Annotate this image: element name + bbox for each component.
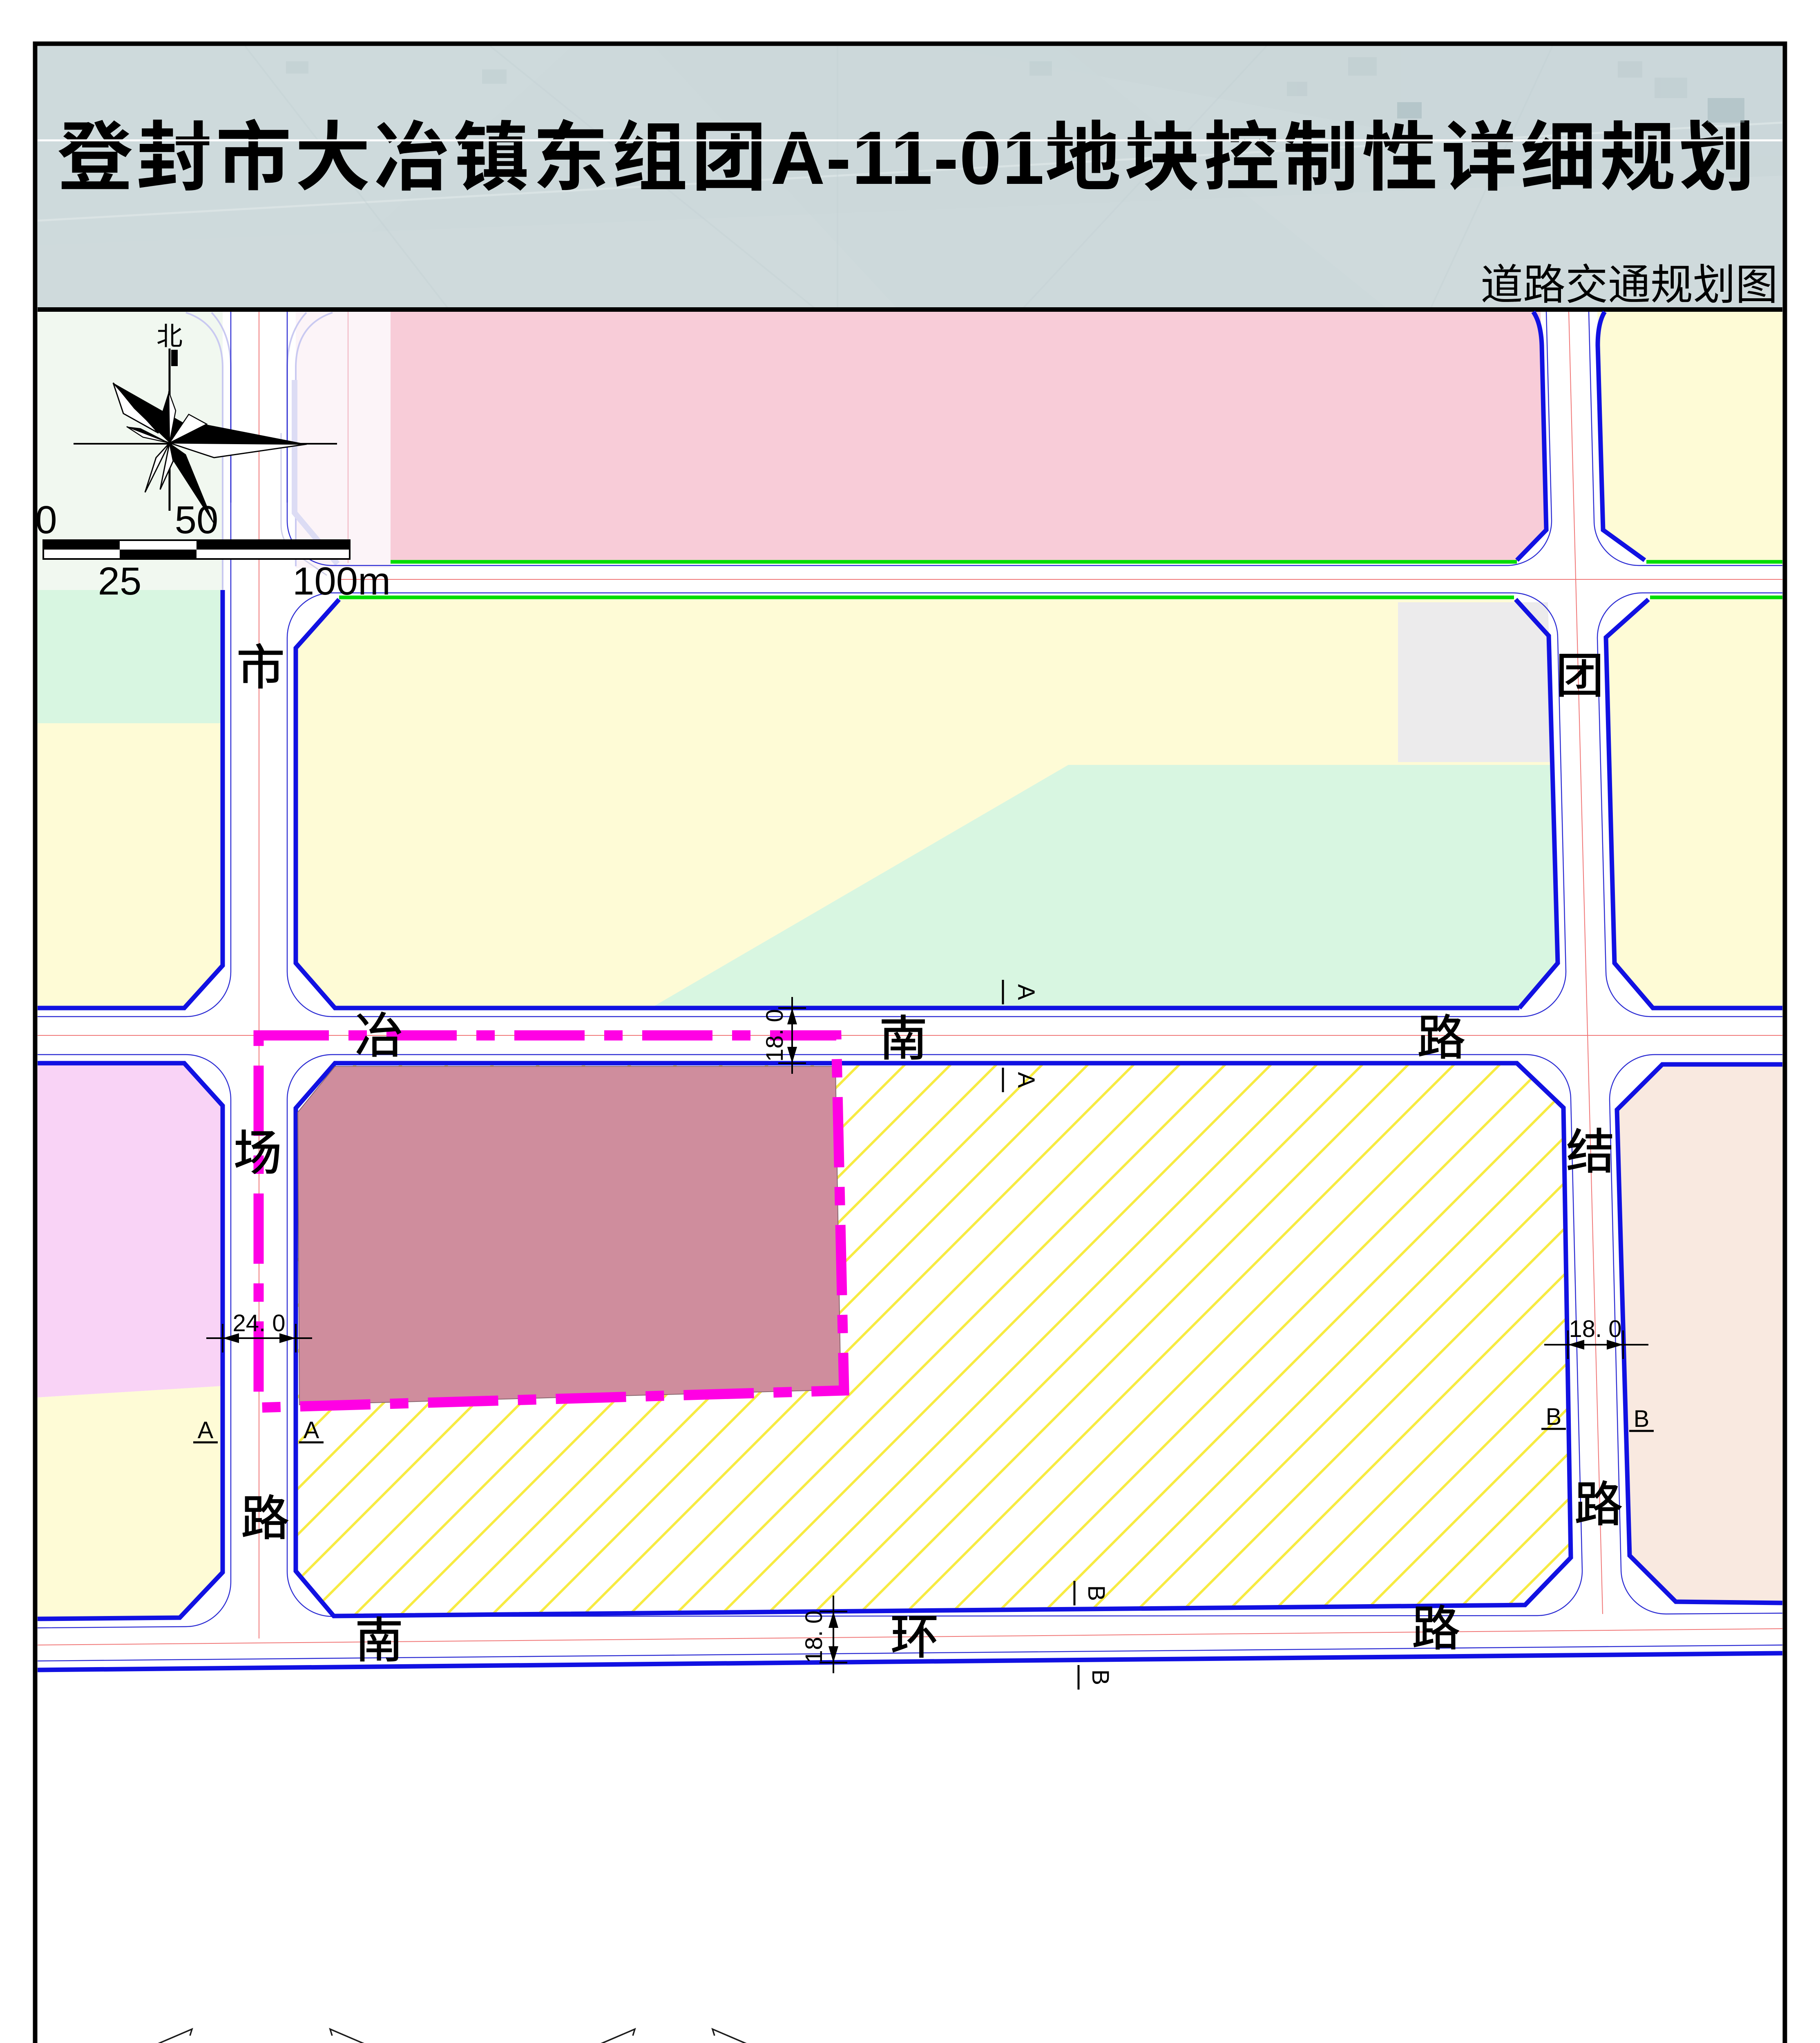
svg-text:南: 南 <box>879 999 927 1069</box>
svg-text:路: 路 <box>1412 1589 1460 1659</box>
svg-text:B: B <box>1546 1404 1562 1430</box>
svg-text:100m: 100m <box>293 559 391 603</box>
svg-text:路: 路 <box>241 1479 289 1549</box>
svg-text:冶: 冶 <box>355 997 403 1066</box>
svg-text:南: 南 <box>355 1601 403 1671</box>
svg-text:市: 市 <box>237 628 285 698</box>
svg-text:A: A <box>1013 1072 1039 1088</box>
svg-text:24. 0: 24. 0 <box>233 1310 286 1337</box>
svg-text:18. 0: 18. 0 <box>801 1611 827 1663</box>
svg-text:18. 0: 18. 0 <box>761 1009 788 1062</box>
svg-text:环: 环 <box>891 1598 939 1667</box>
svg-text:团: 团 <box>1556 637 1604 706</box>
svg-text:B: B <box>1634 1406 1650 1432</box>
svg-text:A: A <box>304 1417 319 1444</box>
svg-text:25: 25 <box>98 559 142 603</box>
svg-text:结: 结 <box>1566 1113 1615 1182</box>
svg-text:北: 北 <box>156 315 183 353</box>
svg-text:18. 0: 18. 0 <box>1569 1316 1622 1342</box>
svg-text:路: 路 <box>1417 999 1465 1068</box>
svg-text:B: B <box>1083 1585 1110 1601</box>
svg-text:B: B <box>1087 1670 1114 1685</box>
svg-text:场: 场 <box>234 1114 282 1184</box>
svg-text:50: 50 <box>175 498 219 542</box>
svg-text:A: A <box>1013 984 1039 1000</box>
svg-text:A: A <box>198 1417 214 1444</box>
svg-text:道路交通规划图: 道路交通规划图 <box>1481 250 1778 312</box>
svg-text:路: 路 <box>1574 1465 1623 1535</box>
svg-text:0: 0 <box>35 498 57 542</box>
